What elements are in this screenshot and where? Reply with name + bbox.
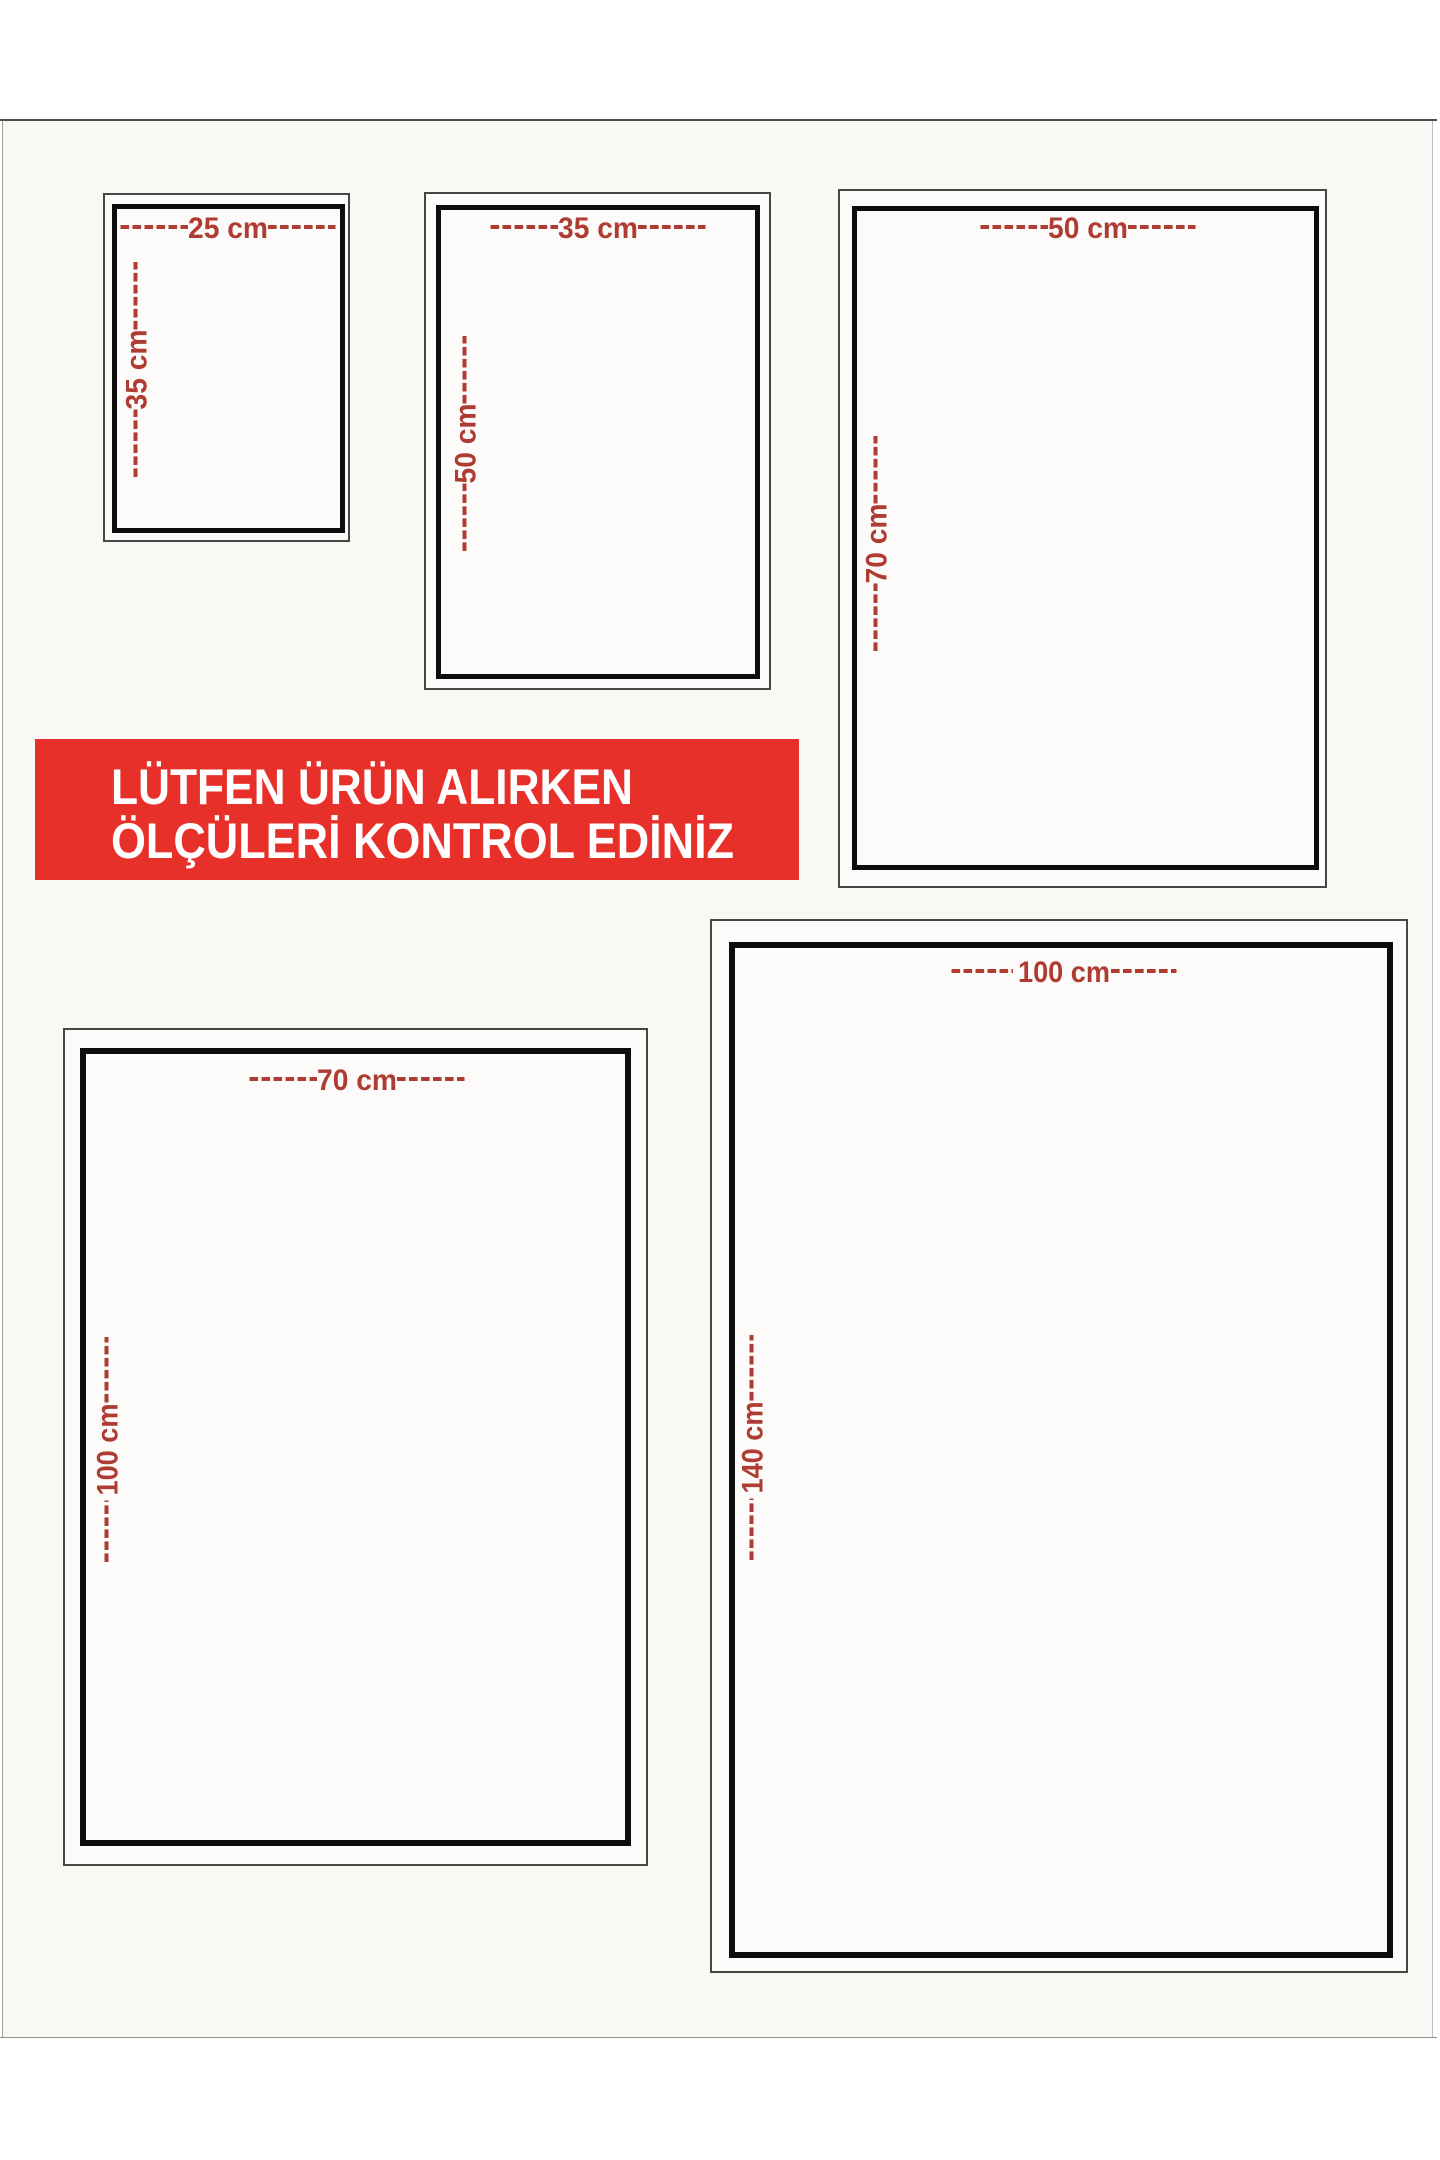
svg-text:100 cm: 100 cm bbox=[92, 1404, 125, 1496]
svg-text:140 cm: 140 cm bbox=[737, 1402, 770, 1494]
svg-text:100 cm: 100 cm bbox=[1018, 956, 1110, 989]
svg-text:ÖLÇÜLERİ KONTROL EDİNİZ: ÖLÇÜLERİ KONTROL EDİNİZ bbox=[111, 813, 734, 869]
svg-text:25 cm: 25 cm bbox=[188, 212, 268, 245]
svg-text:70 cm: 70 cm bbox=[861, 504, 894, 584]
svg-text:70 cm: 70 cm bbox=[317, 1064, 397, 1097]
svg-text:35 cm: 35 cm bbox=[558, 212, 638, 245]
svg-text:35 cm: 35 cm bbox=[121, 330, 154, 410]
svg-text:50 cm: 50 cm bbox=[450, 404, 483, 484]
svg-text:LÜTFEN ÜRÜN ALIRKEN: LÜTFEN ÜRÜN ALIRKEN bbox=[111, 759, 633, 815]
svg-text:50 cm: 50 cm bbox=[1048, 212, 1128, 245]
